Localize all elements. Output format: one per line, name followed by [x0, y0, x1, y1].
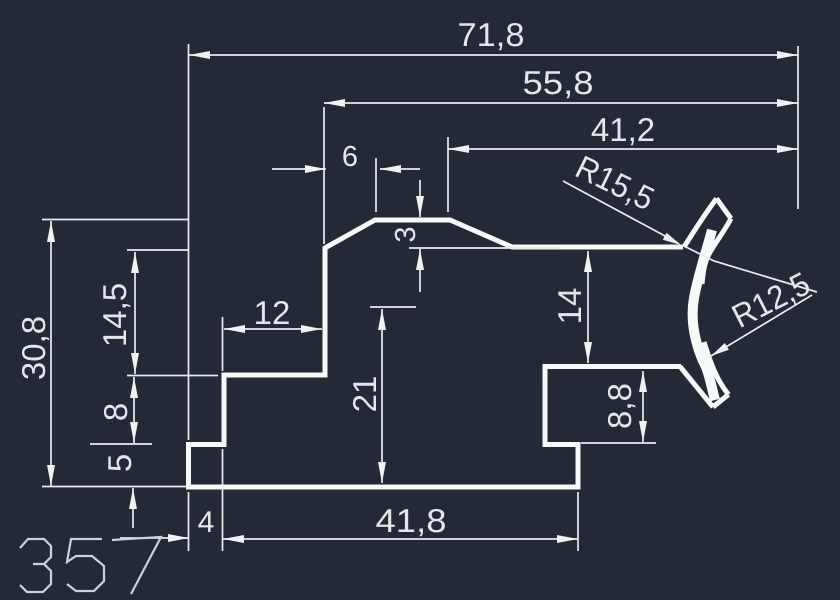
svg-text:21: 21	[346, 376, 383, 413]
svg-text:14,5: 14,5	[96, 283, 133, 347]
svg-text:4: 4	[198, 506, 215, 539]
svg-text:14: 14	[551, 288, 588, 325]
svg-text:3: 3	[390, 226, 422, 242]
svg-text:41,8: 41,8	[376, 502, 447, 539]
svg-text:41,2: 41,2	[591, 111, 655, 148]
svg-text:8,8: 8,8	[601, 383, 638, 429]
svg-text:30,8: 30,8	[15, 316, 52, 380]
svg-text:12: 12	[254, 294, 291, 331]
svg-text:5: 5	[101, 454, 138, 472]
svg-text:8: 8	[97, 403, 134, 421]
svg-text:6: 6	[342, 141, 358, 173]
svg-text:71,8: 71,8	[458, 16, 525, 53]
svg-text:55,8: 55,8	[523, 64, 594, 101]
